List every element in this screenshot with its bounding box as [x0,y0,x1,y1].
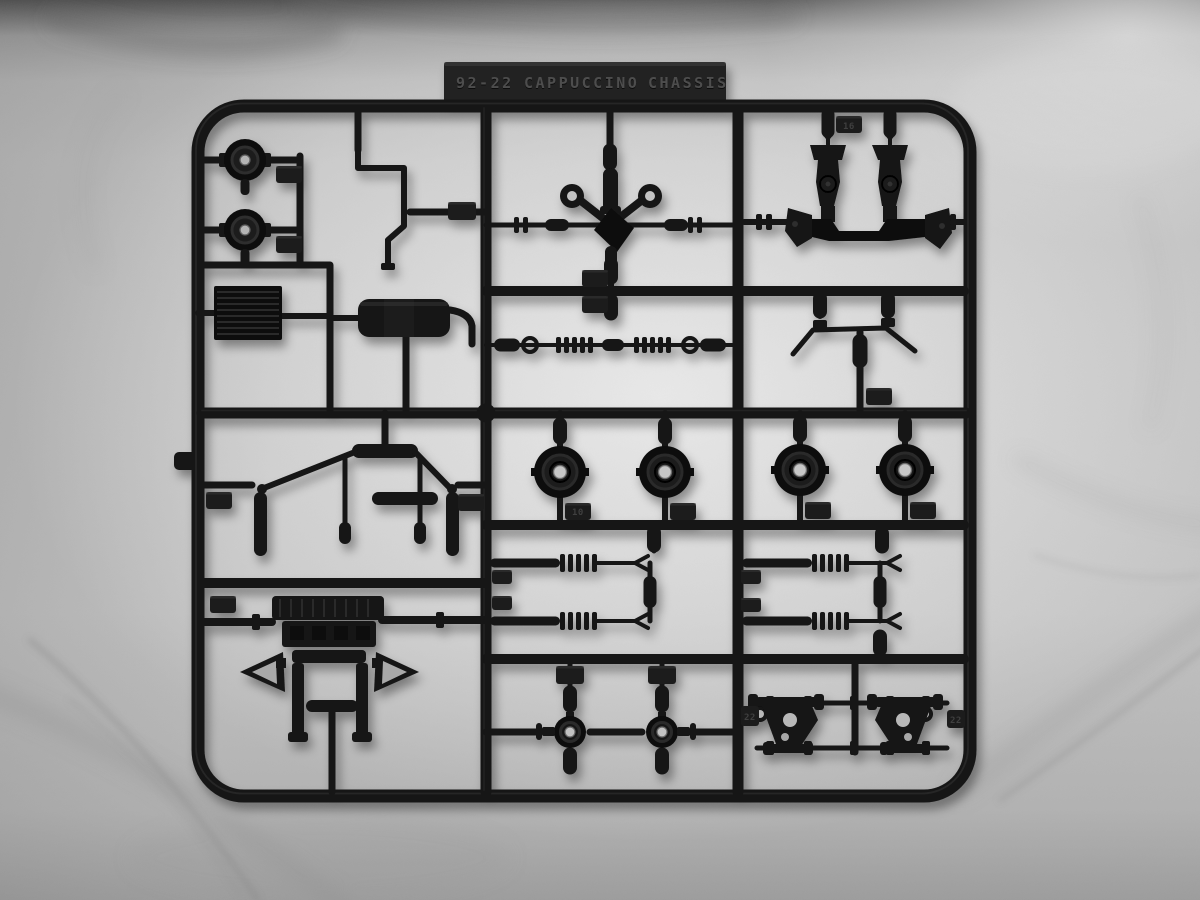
tab-subframe-number: 16 [843,122,855,132]
tab-hub-number: 10 [572,508,584,518]
tab-arm-left-number: 22 [744,713,756,723]
tab-hub-10: 10 [565,503,591,520]
part-radiator [214,286,282,340]
photo-grain [0,0,1200,900]
label-name: CAPPUCCINO [524,74,639,92]
sprue-label-tab: 92-22 92-22 CAPPUCCINO CAPPUCCINO CHASSI… [444,62,729,104]
sprue-photo: 92-22 92-22 CAPPUCCINO CAPPUCCINO CHASSI… [0,0,1200,900]
label-group: CHASSIS [648,74,729,92]
label-code: 92-22 [456,74,514,92]
tab-subframe-16: 16 [836,116,862,133]
tab-arm-right-number: 22 [950,716,962,726]
tab-arm-left-22: 22 [741,706,759,726]
tab-arm-right-22: 22 [947,710,965,728]
marble-surface: 92-22 92-22 CAPPUCCINO CAPPUCCINO CHASSI… [0,0,1200,900]
